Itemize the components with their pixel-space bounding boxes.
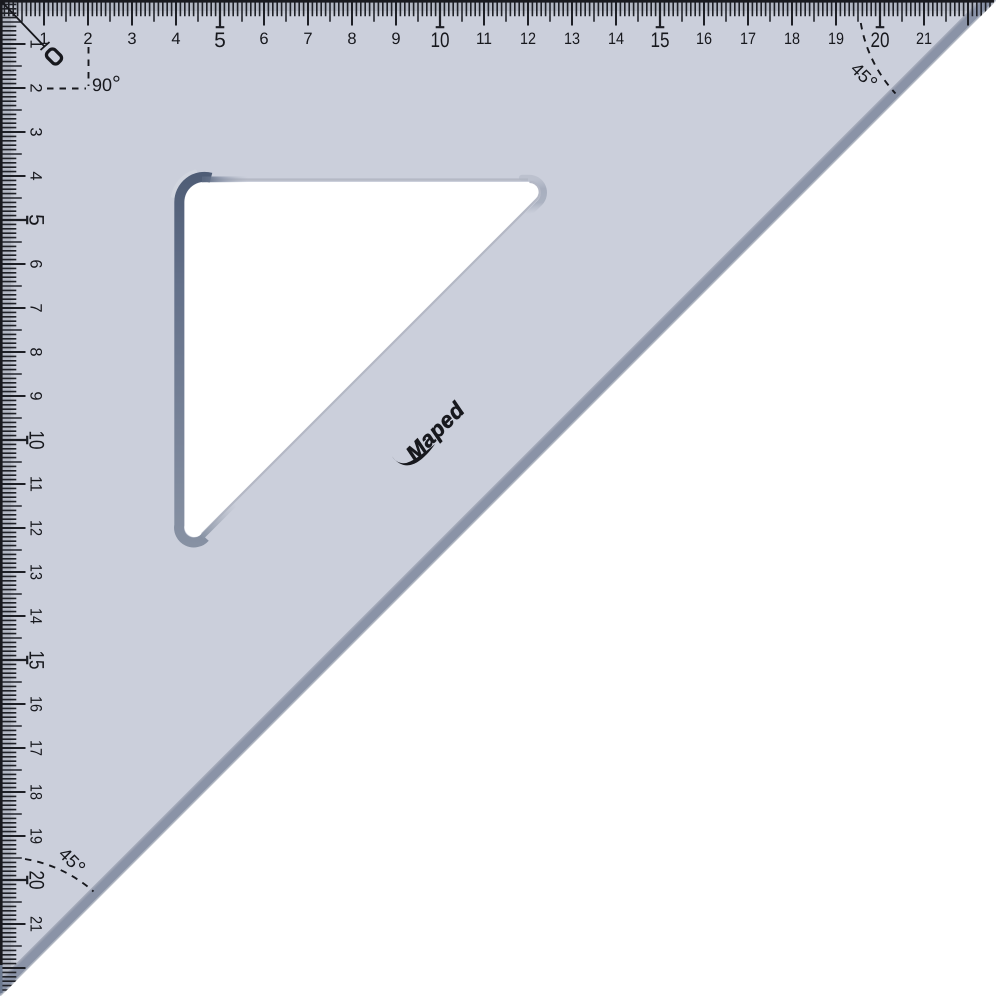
svg-text:4: 4	[27, 171, 45, 180]
svg-text:21: 21	[27, 916, 45, 932]
svg-text:4: 4	[171, 30, 180, 48]
svg-text:18: 18	[27, 784, 45, 800]
svg-text:12: 12	[27, 520, 45, 536]
svg-text:14: 14	[608, 30, 624, 48]
svg-text:10: 10	[431, 29, 450, 52]
svg-text:10: 10	[25, 431, 48, 450]
svg-text:13: 13	[27, 564, 45, 580]
svg-text:11: 11	[27, 476, 45, 492]
svg-text:7: 7	[303, 30, 312, 48]
svg-text:6: 6	[259, 30, 268, 48]
svg-text:14: 14	[27, 608, 45, 624]
svg-text:9: 9	[391, 30, 400, 48]
svg-text:3: 3	[27, 127, 45, 136]
svg-text:7: 7	[27, 303, 45, 312]
svg-text:19: 19	[828, 30, 844, 48]
svg-text:21: 21	[916, 30, 932, 48]
svg-text:15: 15	[651, 29, 670, 52]
svg-text:13: 13	[564, 30, 580, 48]
svg-text:19: 19	[27, 828, 45, 844]
svg-text:9: 9	[27, 391, 45, 400]
svg-text:6: 6	[27, 259, 45, 268]
svg-text:2: 2	[27, 83, 45, 92]
svg-text:5: 5	[25, 214, 48, 226]
svg-text:5: 5	[214, 29, 226, 52]
svg-text:16: 16	[696, 30, 712, 48]
svg-text:8: 8	[27, 347, 45, 356]
svg-text:3: 3	[127, 30, 136, 48]
svg-text:8: 8	[347, 30, 356, 48]
svg-text:15: 15	[25, 651, 48, 670]
svg-text:20: 20	[25, 871, 48, 890]
svg-text:18: 18	[784, 30, 800, 48]
svg-text:90°: 90°	[92, 71, 121, 96]
svg-text:17: 17	[27, 740, 45, 756]
svg-text:11: 11	[476, 30, 492, 48]
svg-text:20: 20	[871, 29, 890, 52]
svg-text:17: 17	[740, 30, 756, 48]
svg-text:12: 12	[520, 30, 536, 48]
svg-text:2: 2	[83, 30, 92, 48]
svg-text:16: 16	[27, 696, 45, 712]
